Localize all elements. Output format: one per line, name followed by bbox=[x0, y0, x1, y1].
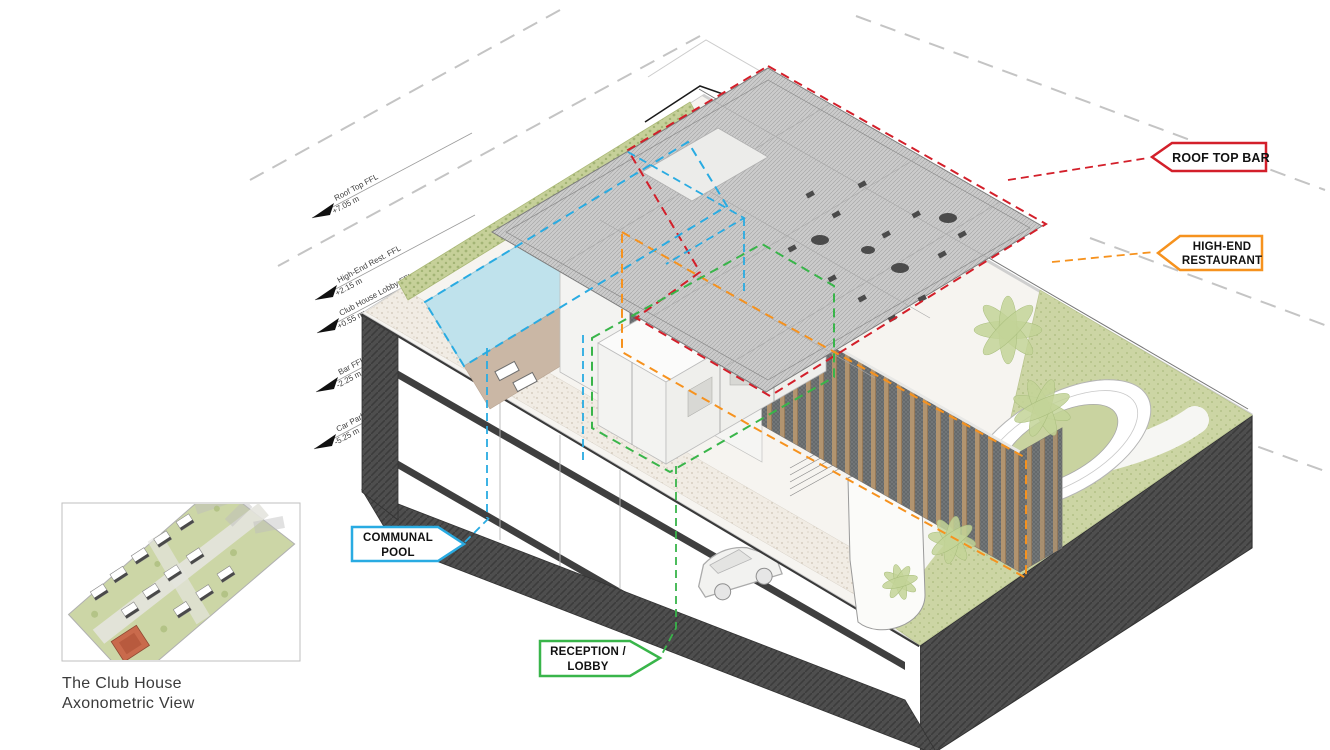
callout-label-line2: LOBBY bbox=[567, 661, 608, 673]
callout-label-line1: COMMUNAL bbox=[363, 532, 433, 544]
callout-label-line1: HIGH-END bbox=[1193, 241, 1251, 253]
callout-communal-pool: COMMUNAL POOL bbox=[352, 527, 464, 561]
caption-line1: The Club House bbox=[62, 675, 182, 692]
callout-label-line2: POOL bbox=[381, 547, 414, 559]
callout-label-line1: RECEPTION / bbox=[550, 646, 626, 658]
callout-high-end-restaurant: HIGH-END RESTAURANT bbox=[1158, 236, 1262, 270]
callout-roof-top-bar: ROOF TOP BAR bbox=[1152, 143, 1270, 171]
cut-wall bbox=[362, 313, 398, 520]
callout-label-line2: RESTAURANT bbox=[1182, 255, 1262, 267]
axonometric-drawing: Roof Top FFL +7.05 m High-End Rest. FFL … bbox=[0, 0, 1330, 750]
caption-line2: Axonometric View bbox=[62, 695, 195, 712]
callout-label: ROOF TOP BAR bbox=[1172, 151, 1270, 165]
axonometric-view-page: Roof Top FFL +7.05 m High-End Rest. FFL … bbox=[0, 0, 1330, 750]
